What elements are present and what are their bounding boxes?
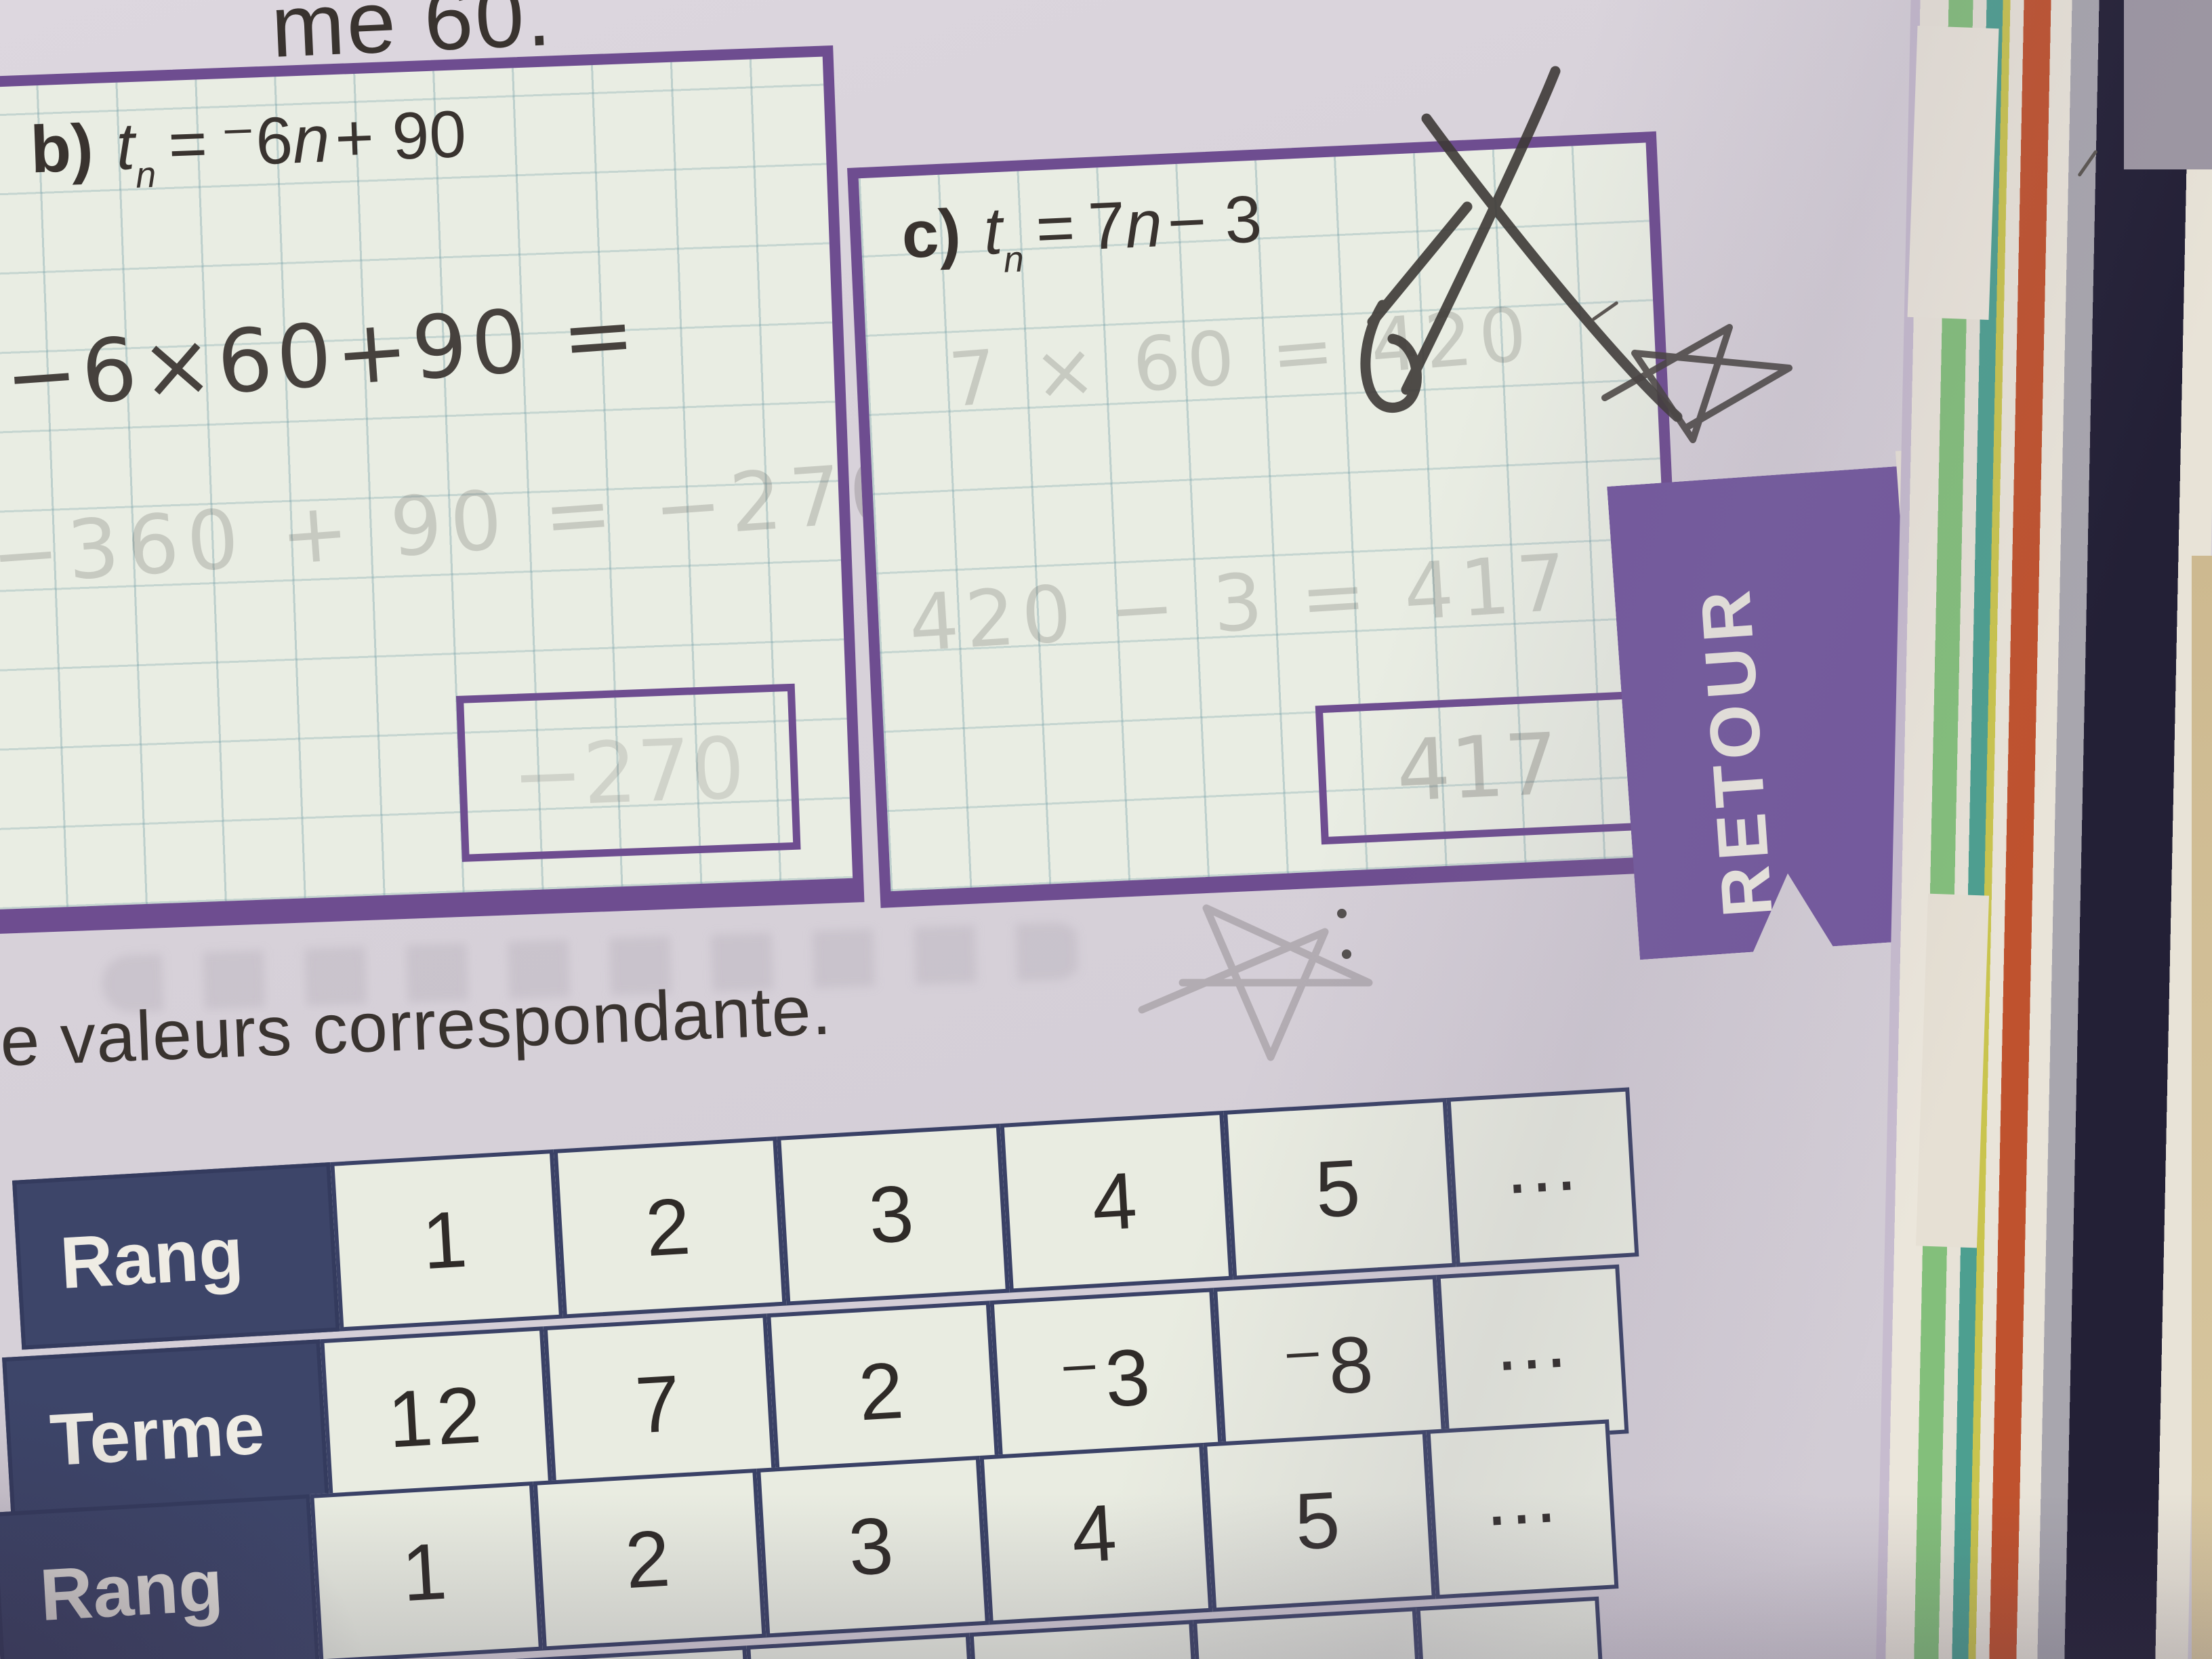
formula-tail: − 3: [1166, 181, 1263, 260]
formula-subscript: n: [1002, 239, 1025, 280]
page-corner-step: [1908, 26, 1999, 320]
retour-label: RETOUR: [1685, 582, 1789, 920]
erased-answer: −270: [510, 720, 746, 826]
exercise-b-label: b)tn=⁻6n+ 90: [29, 96, 468, 200]
table-cell: 17: [1193, 1607, 1426, 1659]
erased-star-doodle: [1101, 867, 1393, 1071]
exercise-c-label: c)tn=7n− 3: [900, 180, 1264, 285]
table-cell: 2: [533, 1469, 766, 1651]
table-cell-ellipsis: …: [1437, 1265, 1629, 1444]
exercise-box-c: c)tn=7n− 3 7 × 60 = 420 420 − 3 = 417 41…: [847, 131, 1689, 908]
exercise-box-b: b)tn=⁻6n+ 90 −6×60+90 = −360 + 90 = −270…: [0, 45, 864, 935]
handwriting-line-erased: 420 − 3 = 417: [906, 537, 1576, 670]
exercise-c-letter: c): [900, 195, 962, 272]
table-cell-ellipsis: …: [1416, 1597, 1609, 1659]
handwriting-line-erased: −360 + 90 = −270: [0, 445, 912, 605]
page-corner-step: [1916, 894, 1989, 1248]
formula-n: n: [1124, 186, 1164, 262]
formula-variable: t: [115, 108, 136, 184]
table-cell: 7: [544, 1313, 777, 1496]
table-cell: ⁻8: [1213, 1275, 1446, 1457]
photo-corner: [2124, 0, 2212, 169]
textbook-photo: me 60. b)tn=⁻6n+ 90 −6×60+90 = −360 + 90…: [0, 0, 2212, 1659]
formula-coefficient: ⁻6: [220, 102, 294, 180]
answer-box: 417: [1315, 691, 1640, 844]
table-cell: 12: [970, 1620, 1203, 1659]
formula-tail: + 90: [333, 96, 467, 176]
table-cell: 2: [766, 1300, 1000, 1483]
table-cell: ⁻3: [990, 1288, 1223, 1470]
table-cell: 3: [777, 1124, 1010, 1306]
table-cell: 12: [320, 1326, 553, 1509]
table-cell: 1: [310, 1481, 543, 1659]
handwriting-line-erased: 7 × 60 = 420: [946, 290, 1537, 424]
table-cell: 5: [1223, 1098, 1456, 1280]
formula-subscript: n: [135, 155, 157, 196]
table-cell: 1: [330, 1149, 563, 1332]
handwriting-line: −6×60+90 =: [1, 283, 642, 430]
erased-answer: 417: [1395, 715, 1561, 821]
formula-coefficient: 7: [1086, 188, 1126, 264]
table-cell: 4: [980, 1443, 1213, 1625]
exercise-b-letter: b): [29, 110, 94, 186]
formula-n: n: [291, 101, 331, 177]
table-cell: 5: [1203, 1430, 1436, 1612]
table-header-cell: Rang: [12, 1162, 340, 1350]
answer-box: −270: [456, 684, 801, 862]
table-cell: 2: [554, 1136, 787, 1319]
table-cell: 4: [1000, 1111, 1233, 1293]
table-cell-ellipsis: …: [1426, 1419, 1618, 1599]
formula-variable: t: [982, 193, 1004, 268]
table-cell: 3: [756, 1456, 989, 1638]
table-header-cell: Rang: [0, 1494, 320, 1659]
equals-sign: =: [1034, 190, 1076, 266]
table-cell-ellipsis: …: [1446, 1087, 1639, 1267]
desk-edge: [2192, 556, 2212, 1659]
equals-sign: =: [167, 106, 209, 182]
